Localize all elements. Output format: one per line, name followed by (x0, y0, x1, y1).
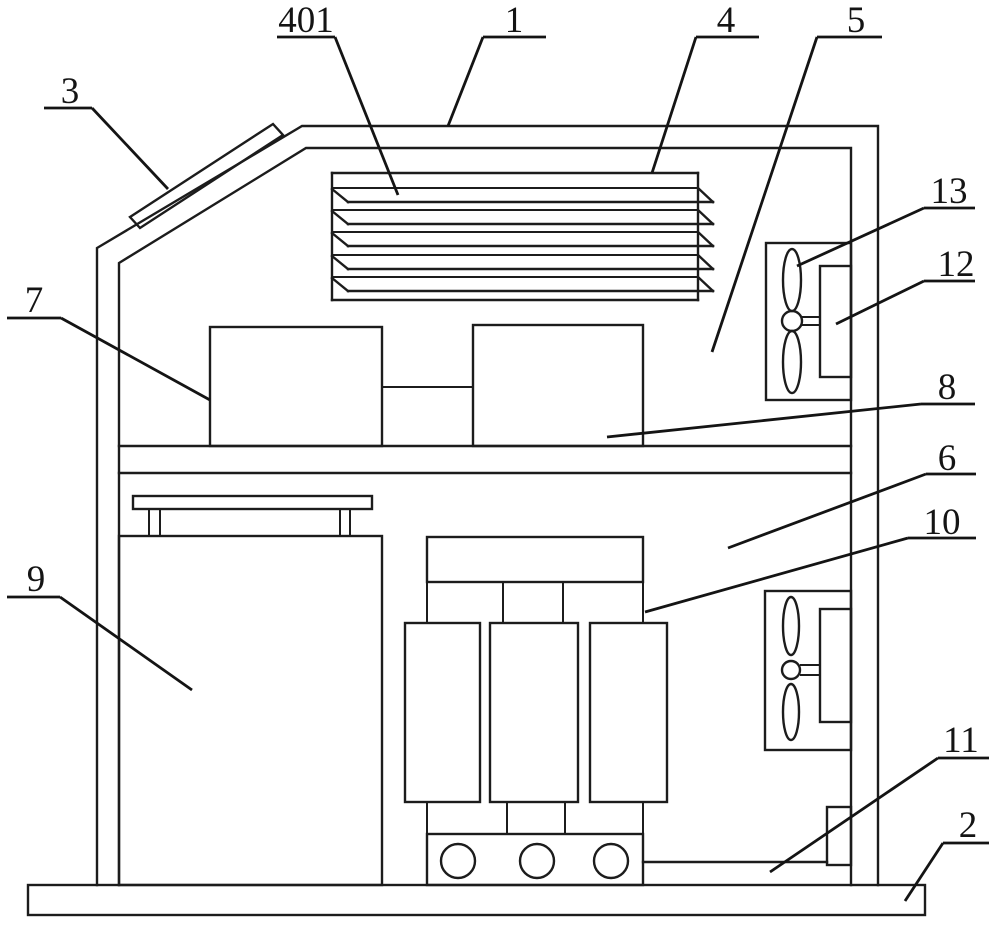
ref-label-12: 12 (836, 244, 975, 324)
pedestal-roller (520, 844, 554, 878)
winding-column-middle (490, 623, 578, 802)
slat-left-diagonal (332, 233, 348, 246)
winding-column-right (590, 623, 667, 802)
junction-box (827, 807, 851, 865)
ref-number-5: 5 (847, 0, 866, 41)
ref-number-8: 8 (938, 367, 957, 408)
ref-number-401: 401 (278, 0, 334, 41)
leader-line-11 (770, 758, 938, 872)
ref-number-13: 13 (931, 171, 968, 212)
patent-figure-page: 40114531312786109112 (0, 0, 1000, 927)
ref-number-12: 12 (938, 244, 975, 285)
ref-number-4: 4 (717, 0, 736, 41)
leader-line-9 (60, 597, 192, 690)
ref-number-10: 10 (924, 502, 961, 543)
slat-left-diagonal (332, 189, 348, 202)
louver-slat (332, 232, 713, 246)
cabinet-housing (97, 126, 878, 885)
leader-line-7 (61, 318, 210, 400)
partition-shelf (119, 446, 851, 473)
fan-blade-bottom (783, 684, 799, 740)
ref-number-2: 2 (959, 805, 978, 846)
leader-line-4 (652, 37, 696, 173)
lower-exhaust-fan (765, 591, 851, 750)
slat-right-diagonal (698, 232, 713, 246)
fan-blade-top (783, 597, 799, 655)
table-top (133, 496, 372, 509)
ref-label-5: 5 (712, 0, 882, 352)
ref-label-401: 401 (277, 0, 398, 195)
fan-motor (820, 266, 851, 377)
leader-line-12 (836, 281, 924, 324)
louver-slat (332, 277, 713, 291)
slat-right-diagonal (698, 188, 713, 202)
upper-equipment (210, 325, 643, 446)
base-plate (28, 885, 925, 915)
leader-line-13 (797, 208, 924, 266)
outer-wall (97, 126, 878, 885)
ref-label-11: 11 (770, 720, 989, 872)
ref-label-9: 9 (7, 559, 192, 690)
ref-label-2: 2 (905, 805, 989, 901)
reference-labels-layer: 40114531312786109112 (7, 0, 989, 901)
equipment-box-left (210, 327, 382, 446)
ref-label-8: 8 (607, 367, 975, 437)
leader-line-8 (607, 404, 921, 437)
louver-slat (332, 210, 713, 224)
equipment-box-right (473, 325, 643, 446)
ref-label-3: 3 (44, 71, 168, 189)
fan-blade-bottom (783, 331, 801, 393)
fan-hub (782, 661, 800, 679)
ref-number-1: 1 (505, 0, 524, 41)
leader-line-3 (92, 108, 168, 189)
cabinet-diagram: 40114531312786109112 (0, 0, 1000, 927)
slat-left-diagonal (332, 256, 348, 269)
fan-housing (765, 591, 851, 750)
louver-slat (332, 255, 713, 269)
inner-wall (119, 148, 851, 885)
slat-right-diagonal (698, 210, 713, 224)
slat-right-diagonal (698, 277, 713, 291)
leader-line-10 (645, 538, 908, 612)
fan-hub (782, 311, 802, 331)
slat-right-diagonal (698, 255, 713, 269)
slat-left-diagonal (332, 278, 348, 291)
louver-fin-stack (332, 173, 713, 300)
support-table (133, 496, 372, 536)
ref-label-1: 1 (448, 0, 546, 126)
leader-line-401 (335, 37, 398, 195)
louver-slat (332, 188, 713, 202)
fan-motor (820, 609, 851, 722)
ref-number-3: 3 (61, 71, 80, 112)
transformer-top-yoke (427, 537, 643, 582)
transformer-assembly (405, 537, 667, 885)
pedestal-roller (441, 844, 475, 878)
slat-left-diagonal (332, 211, 348, 224)
pedestal-roller (594, 844, 628, 878)
leader-line-1 (448, 37, 483, 126)
ref-number-7: 7 (25, 280, 44, 321)
ref-number-9: 9 (27, 559, 46, 600)
storage-cabinet-box (119, 536, 382, 885)
winding-column-left (405, 623, 480, 802)
ref-label-7: 7 (7, 280, 210, 400)
leader-line-5 (712, 37, 817, 352)
leader-line-6 (728, 474, 926, 548)
ref-number-11: 11 (943, 720, 979, 761)
cable-duct (643, 807, 851, 865)
ref-number-6: 6 (938, 438, 957, 479)
fan-blade-top (783, 249, 801, 311)
